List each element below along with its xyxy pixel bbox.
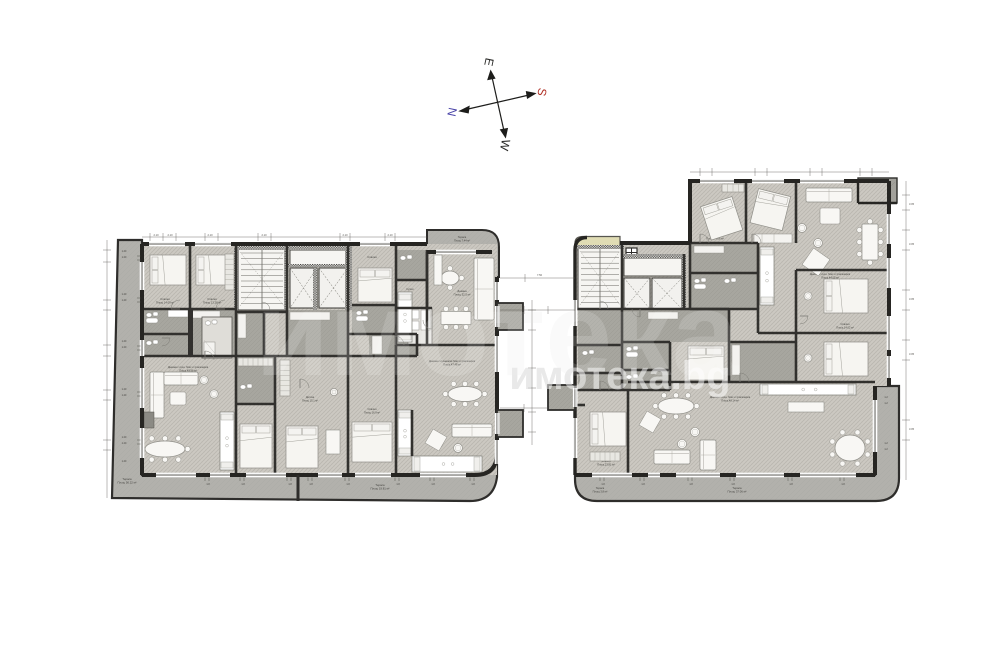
svg-text:Площ 7.44 м²: Площ 7.44 м² — [454, 238, 470, 242]
svg-text:Дневна с кухн. бокс и трапезар: Дневна с кухн. бокс и трапезария — [168, 365, 209, 369]
svg-text:Площ 56.22 м²: Площ 56.22 м² — [118, 480, 137, 484]
svg-text:2.10: 2.10 — [342, 233, 348, 237]
svg-text:1.20: 1.20 — [122, 346, 127, 349]
svg-text:3.05: 3.05 — [909, 297, 915, 301]
svg-text:Спалня: Спалня — [367, 255, 377, 259]
svg-text:2.10: 2.10 — [167, 233, 173, 237]
svg-text:Площ 16.9 м²: Площ 16.9 м² — [364, 410, 380, 414]
svg-text:3.05: 3.05 — [909, 202, 915, 206]
svg-text:Площ 37.06 м²: Площ 37.06 м² — [728, 489, 747, 493]
svg-text:1.20: 1.20 — [122, 388, 127, 391]
svg-text:Площ 3.8 м²: Площ 3.8 м² — [593, 489, 608, 493]
svg-text:1.20: 1.20 — [122, 250, 127, 253]
svg-text:1.20: 1.20 — [122, 394, 127, 397]
svg-text:1.20: 1.20 — [122, 460, 127, 463]
svg-text:Площ 19.81 м²: Площ 19.81 м² — [371, 486, 390, 490]
svg-text:1.20: 1.20 — [122, 442, 127, 445]
svg-text:2.10: 2.10 — [153, 233, 159, 237]
svg-text:Спалня: Спалня — [367, 407, 377, 411]
svg-text:Спалня: Спалня — [207, 297, 217, 301]
svg-text:1.20: 1.20 — [122, 340, 127, 343]
svg-text:3.05: 3.05 — [909, 352, 915, 356]
svg-text:2.10: 2.10 — [261, 233, 267, 237]
svg-text:Площ 14.02 м²: Площ 14.02 м² — [836, 325, 854, 329]
svg-text:имотека: имотека — [255, 267, 740, 401]
svg-text:1.20: 1.20 — [122, 293, 127, 296]
svg-text:3.05: 3.05 — [909, 242, 915, 246]
svg-text:1.20: 1.20 — [122, 256, 127, 259]
svg-text:2.10: 2.10 — [207, 233, 213, 237]
svg-text:2.10: 2.10 — [387, 233, 393, 237]
svg-text:3.05: 3.05 — [909, 427, 915, 431]
svg-text:1.20: 1.20 — [122, 299, 127, 302]
svg-text:Площ 13.28 м²: Площ 13.28 м² — [203, 300, 221, 304]
svg-text:Тераса: Тераса — [458, 235, 467, 239]
svg-text:Тераса: Тераса — [596, 486, 605, 490]
svg-text:Спалня: Спалня — [160, 297, 170, 301]
svg-text:1.20: 1.20 — [122, 436, 127, 439]
svg-text:Спалня: Спалня — [840, 322, 850, 326]
svg-text:Площ 23.81 м²: Площ 23.81 м² — [597, 462, 615, 466]
svg-text:Площ 14.09 м²: Площ 14.09 м² — [156, 300, 174, 304]
